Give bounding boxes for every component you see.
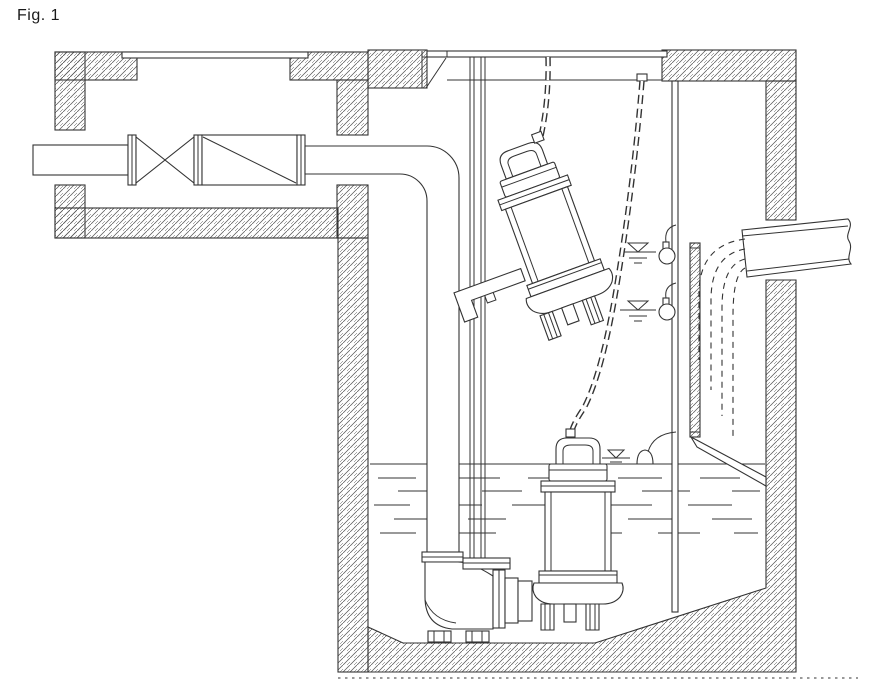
float-switches (637, 225, 676, 464)
gate-valve (128, 135, 202, 185)
installed-pump (533, 429, 623, 630)
chamber-right-wall-upper (337, 80, 368, 135)
duckfoot-bend (425, 558, 532, 642)
pit-right-wall-upper (766, 81, 796, 220)
water-level-marker-low (620, 301, 656, 321)
chamber-bottom-slab (55, 208, 338, 238)
water-level-marker-high (620, 243, 656, 263)
pit-left-wall (338, 238, 368, 672)
float-switch-floating (637, 450, 653, 464)
inflow-baffle (690, 243, 766, 486)
chamber-right-wall-lower (337, 185, 368, 238)
installation-drawing (0, 0, 869, 699)
pit-access-cover (427, 51, 667, 57)
inlet-pipe (33, 145, 128, 175)
deflector-plate (691, 437, 766, 486)
suspended-pump-lifting-eye (532, 131, 544, 143)
duckfoot-body (425, 562, 493, 629)
duckfoot-foot-pads (428, 631, 489, 642)
chain-anchor (637, 74, 647, 81)
chamber-access-cover (122, 52, 308, 58)
pit-ceiling-right (662, 50, 796, 81)
guide-claw-bracket (454, 269, 531, 322)
installed-pump-lifting-eye (566, 429, 575, 437)
pit-ceiling-left (368, 50, 427, 88)
lifting-chain-front (541, 57, 548, 136)
inflow-streamlines (699, 239, 745, 436)
discharge-piping (33, 135, 463, 562)
water-level-marker-surface (602, 450, 630, 462)
discharge-pipe-and-riser (305, 146, 459, 552)
float-cable-conduit (672, 81, 678, 612)
check-valve (202, 135, 305, 185)
figure-canvas: Fig. 1 (0, 0, 869, 699)
spool-flange-b (518, 581, 532, 621)
spool-flange-a (505, 578, 518, 623)
